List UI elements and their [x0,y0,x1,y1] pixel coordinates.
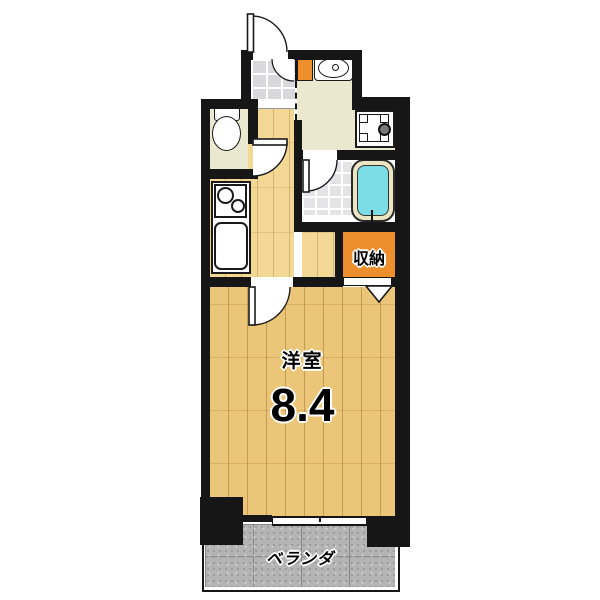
storage-label: 収納 [343,245,395,269]
main-room-door [249,287,290,325]
main-room-size-label: 8.4 [210,378,395,432]
toilet-door [253,139,287,176]
closet-folding-door [366,286,392,302]
entrance-door [248,14,288,52]
floorplan-canvas: 洋室 8.4 収納 ベランダ [0,0,600,600]
genkan-inner-swing [272,59,294,81]
door-symbols-layer [0,0,600,600]
veranda-label: ベランダ [205,545,395,569]
main-room-label: 洋室 [210,346,395,373]
bathroom-door [303,160,337,192]
